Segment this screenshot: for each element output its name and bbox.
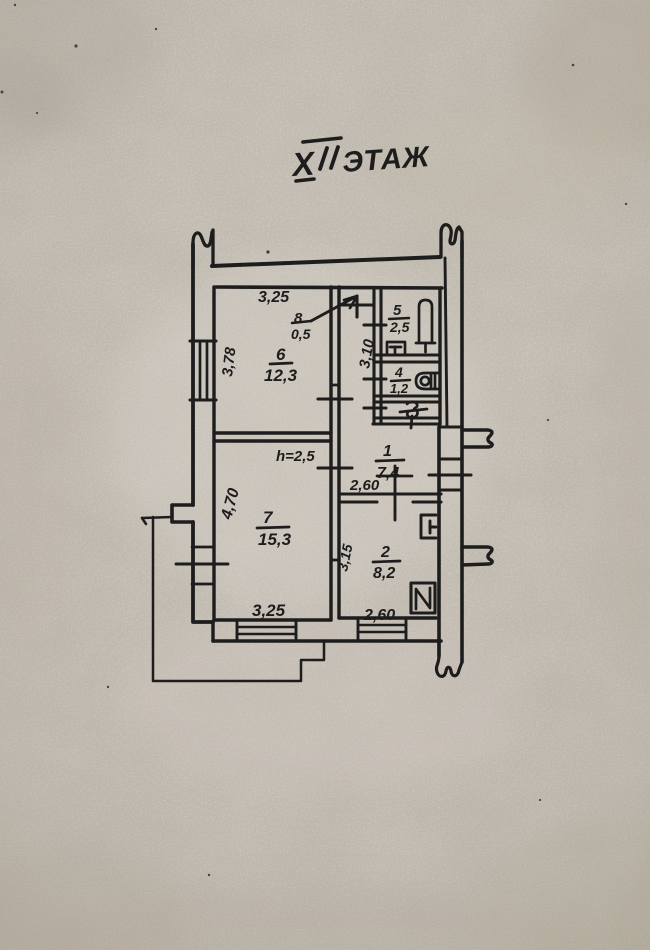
svg-text:15,3: 15,3 — [258, 530, 292, 549]
svg-text:ЭТАЖ: ЭТАЖ — [341, 141, 432, 179]
svg-text:3,25: 3,25 — [258, 289, 290, 306]
svg-text:1: 1 — [383, 443, 392, 460]
svg-text:8: 8 — [294, 310, 303, 327]
svg-text:7,4: 7,4 — [377, 465, 399, 482]
svg-text:5: 5 — [393, 302, 402, 319]
svg-text:1,2: 1,2 — [390, 381, 409, 396]
svg-text:h=2,5: h=2,5 — [276, 448, 315, 465]
svg-text:4: 4 — [394, 364, 403, 380]
svg-text:2,60: 2,60 — [349, 477, 380, 494]
svg-text:8,2: 8,2 — [373, 565, 395, 582]
svg-text:6: 6 — [276, 345, 286, 364]
svg-text:2,60: 2,60 — [363, 607, 395, 624]
svg-text:7: 7 — [263, 508, 274, 527]
svg-text:2,5: 2,5 — [389, 319, 410, 335]
svg-text:3,25: 3,25 — [252, 601, 286, 620]
svg-text:3,78: 3,78 — [219, 346, 240, 378]
svg-text:2: 2 — [380, 544, 390, 561]
svg-text:12,3: 12,3 — [264, 366, 298, 385]
svg-text:0,5: 0,5 — [291, 326, 311, 342]
